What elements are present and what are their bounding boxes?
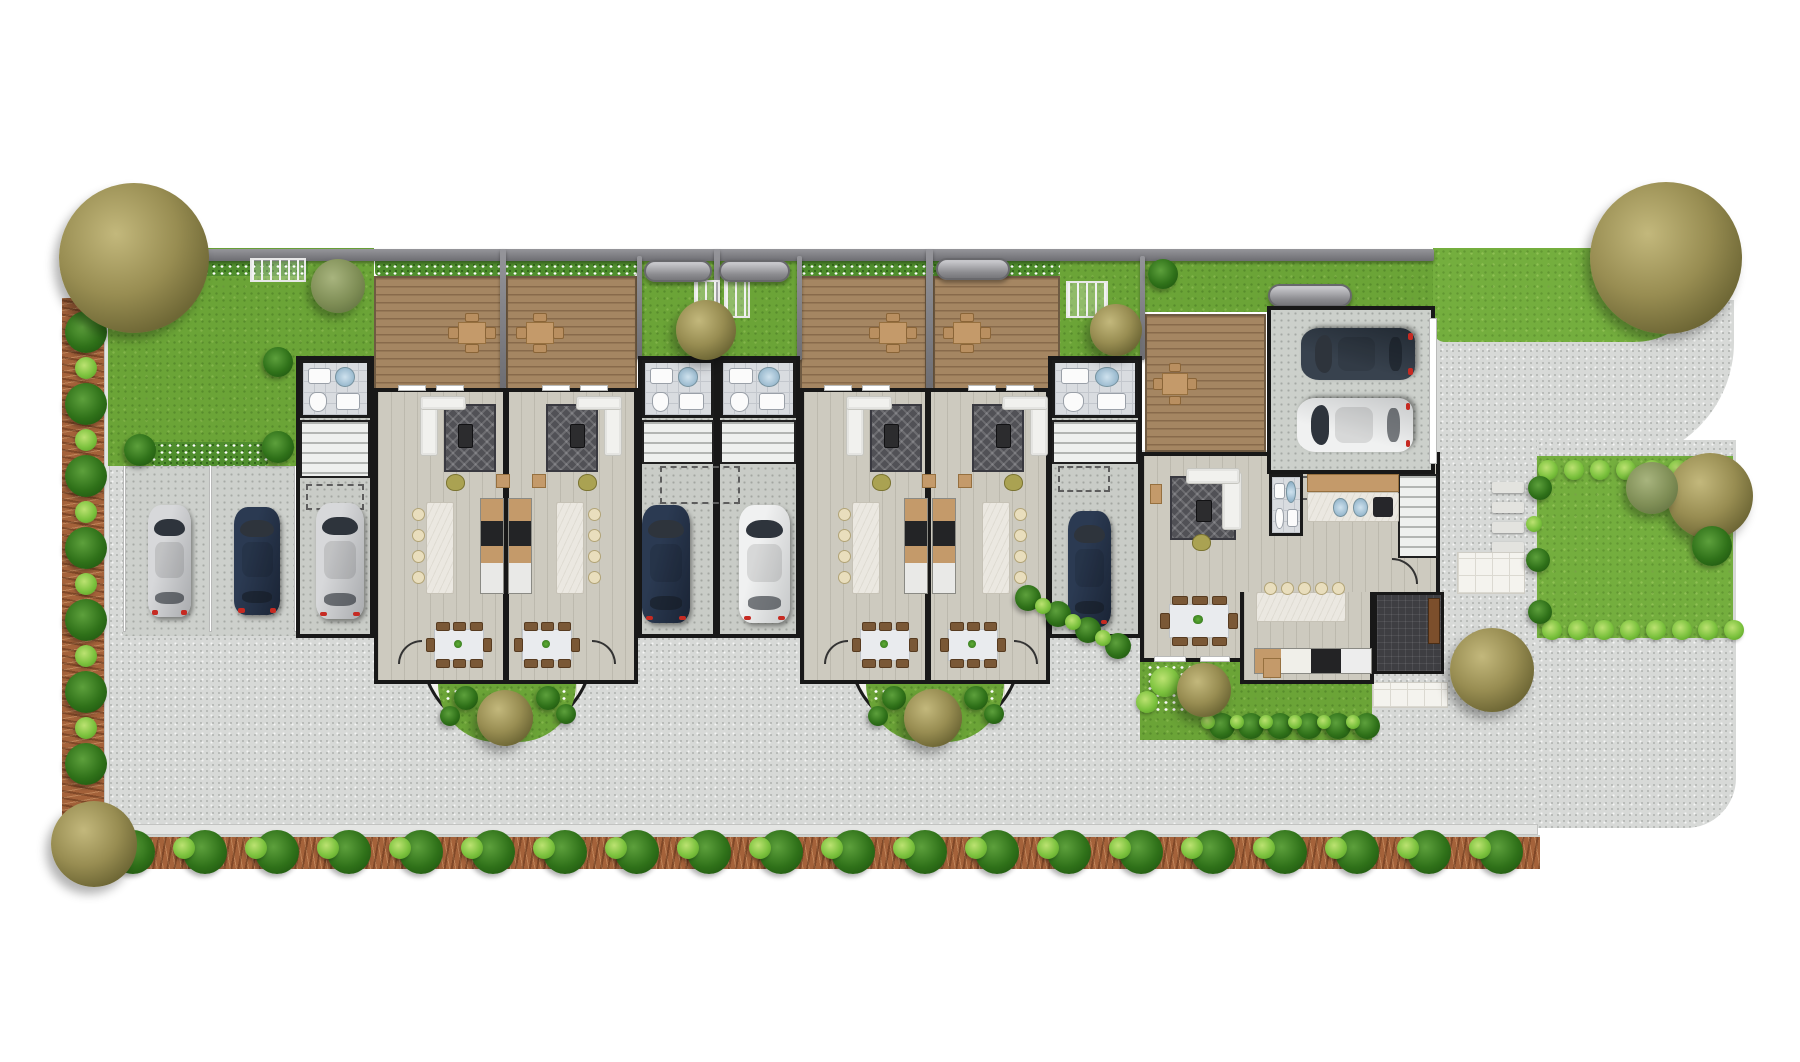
sofa-unit-3-a — [846, 404, 864, 456]
shrub-row-bottom-light-11 — [821, 837, 843, 859]
shrub-bay-a-2 — [536, 686, 560, 710]
shrub-fr-2 — [1526, 548, 1550, 572]
sofa-house-5-b — [1186, 468, 1240, 484]
outdoor-table-deck-4 — [942, 312, 990, 352]
fence-yard-2 — [797, 256, 802, 360]
shrub-back-right — [1148, 259, 1178, 289]
hedge-house-front-light-6 — [1346, 715, 1360, 729]
shrub-bay-a-1 — [454, 686, 478, 710]
kitchen-cabinets-house-5 — [1307, 474, 1399, 492]
garden-trellis-1 — [250, 258, 306, 282]
stools-house-5 — [1264, 582, 1349, 593]
patio-right — [1457, 552, 1525, 594]
armchair-unit-2 — [578, 474, 597, 491]
fence-yard-3 — [1140, 256, 1145, 360]
stairs-house-5 — [1398, 474, 1438, 558]
shrub-row-left-light-2 — [75, 429, 97, 451]
shrub-row-bottom-light-2 — [173, 837, 195, 859]
kitchen-bench-house-5 — [1307, 492, 1399, 522]
hedge-front-right-bottom-6 — [1672, 620, 1692, 640]
stairs-unit-2 — [642, 420, 714, 464]
shrub-row-bottom-light-8 — [605, 837, 627, 859]
side-table-house-5 — [1150, 484, 1162, 504]
glass-door-2 — [436, 385, 464, 391]
glass-door-10 — [1200, 656, 1230, 662]
car-carport-1-white — [314, 502, 366, 620]
coffee-table-unit-2 — [570, 424, 585, 448]
tree-house-front — [1177, 663, 1231, 717]
laundry-house-5 — [1269, 474, 1303, 536]
stools-unit-1 — [412, 508, 423, 592]
shrub-row-bottom-light-13 — [965, 837, 987, 859]
stepping-stone-1 — [1492, 482, 1524, 493]
shrub-row-left-light-4 — [75, 573, 97, 595]
stairs-unit-1 — [300, 420, 370, 478]
shrub-row-bottom-light-16 — [1181, 837, 1203, 859]
hedge-slope-light-2 — [1065, 614, 1081, 630]
porch-dashed-2 — [660, 466, 740, 504]
shrub-bay-b-3 — [868, 706, 888, 726]
shrub-row-left-dark-5 — [65, 599, 107, 641]
hedge-front-right-bottom-4 — [1620, 620, 1640, 640]
tree-bay-b — [904, 689, 962, 747]
shrub-row-left-dark-6 — [65, 671, 107, 713]
shrub-left-lawn-2 — [124, 434, 156, 466]
sofa-unit-2-a — [604, 404, 622, 456]
dining-set-unit-4 — [940, 622, 1004, 666]
glass-door-8 — [1006, 385, 1034, 391]
hedge-front-right-top-2 — [1564, 460, 1584, 480]
parking-line-left — [123, 464, 126, 632]
island-unit-4 — [982, 502, 1010, 594]
shrub-row-bottom-light-10 — [749, 837, 771, 859]
glass-door-9 — [1154, 656, 1186, 662]
tree-central-yard-2 — [1090, 304, 1142, 356]
shrub-row-bottom-light-15 — [1109, 837, 1131, 859]
shrub-row-bottom-light-19 — [1397, 837, 1419, 859]
shrub-row-bottom-light-5 — [389, 837, 411, 859]
hedge-house-front-light-1 — [1201, 715, 1215, 729]
shrub-row-bottom-light-20 — [1469, 837, 1491, 859]
garage-door-opening — [1429, 318, 1437, 464]
glass-door-5 — [824, 385, 852, 391]
shrub-row-bottom-light-14 — [1037, 837, 1059, 859]
hedge-front-right-bottom-2 — [1568, 620, 1588, 640]
car-garage-white — [1296, 396, 1414, 454]
shrub-row-left-light-3 — [75, 501, 97, 523]
site-plan: Townhouse development ground-floor site … — [0, 0, 1800, 1062]
shrub-row-left-dark-2 — [65, 383, 107, 425]
stools-unit-4 — [1014, 508, 1025, 592]
shrub-row-left-dark-3 — [65, 455, 107, 497]
hedge-front-right-bottom-7 — [1698, 620, 1718, 640]
flowerbed-left — [150, 442, 268, 466]
shrub-row-bottom-light-9 — [677, 837, 699, 859]
hedge-house-front-light-4 — [1288, 715, 1302, 729]
armchair-unit-3 — [872, 474, 891, 491]
fence-deck-divider-b — [926, 249, 933, 389]
glass-door-7 — [968, 385, 996, 391]
shrub-fr-3 — [1528, 600, 1552, 624]
armchair-unit-1 — [446, 474, 465, 491]
shrub-row-bottom-light-3 — [245, 837, 267, 859]
tree-far-right-2 — [1626, 462, 1678, 514]
glass-door-6 — [862, 385, 890, 391]
tree-corner-top-left — [59, 183, 209, 333]
glass-door-3 — [542, 385, 570, 391]
stools-unit-2 — [588, 508, 599, 592]
dining-set-house-5 — [1160, 596, 1236, 644]
stepping-stone-2 — [1492, 502, 1524, 513]
side-table-unit-4 — [958, 474, 972, 488]
shrub-left-lawn-1 — [263, 347, 293, 377]
water-tank-1 — [644, 260, 712, 282]
sofa-unit-1-b — [420, 396, 466, 410]
car-visitor-navy — [232, 506, 282, 616]
shrub-row-bottom-light-18 — [1325, 837, 1347, 859]
shrub-bay-a-3 — [440, 706, 460, 726]
hedge-slope-light-1 — [1035, 598, 1051, 614]
water-tank-3 — [936, 258, 1010, 280]
shrub-row-bottom-light-12 — [893, 837, 915, 859]
entry-walk — [1372, 682, 1448, 708]
sofa-unit-4-a — [1030, 404, 1048, 456]
hedge-front-right-top-3 — [1590, 460, 1610, 480]
parking-line-mid — [209, 464, 212, 632]
glass-door-4 — [580, 385, 608, 391]
car-carport-2-navy — [640, 504, 692, 624]
shrub-row-left-light-6 — [75, 717, 97, 739]
island-unit-1 — [426, 502, 454, 594]
stools-unit-3 — [838, 508, 849, 592]
shrub-row-bottom-light-4 — [317, 837, 339, 859]
shrub-row-bottom-light-7 — [533, 837, 555, 859]
shrub-bay-b-4 — [984, 704, 1004, 724]
shrub-row-left-light-1 — [75, 357, 97, 379]
tree-central-yard-1 — [676, 300, 736, 360]
shrub-house-front-2 — [1136, 691, 1158, 713]
tree-bay-a — [477, 690, 533, 746]
shrub-bay-b-1 — [882, 686, 906, 710]
side-table-unit-2 — [532, 474, 546, 488]
kitchen-bench-unit-2 — [508, 498, 532, 594]
hedge-house-front-light-5 — [1317, 715, 1331, 729]
kitchen-bench-unit-1 — [480, 498, 504, 594]
shrub-bay-b-2 — [964, 686, 988, 710]
car-carport-4-navy — [1066, 510, 1113, 628]
tree-right-lawn-corner — [1450, 628, 1534, 712]
sofa-unit-4-b — [1002, 396, 1048, 410]
tree-corner-bottom-left — [51, 801, 137, 887]
shrub-fr-1 — [1528, 476, 1552, 500]
dining-set-unit-2 — [514, 622, 578, 666]
bathroom-unit-2 — [642, 360, 714, 418]
stairs-unit-4 — [1052, 420, 1138, 464]
armchair-house-5 — [1192, 534, 1211, 551]
sofa-unit-1-a — [420, 404, 438, 456]
stepping-stone-3 — [1492, 522, 1524, 533]
outdoor-table-deck-3 — [868, 312, 916, 352]
bathroom-unit-4 — [1052, 360, 1138, 418]
coffee-table-unit-4 — [996, 424, 1011, 448]
water-tank-2 — [719, 260, 790, 282]
outdoor-table-deck-5 — [1152, 362, 1196, 404]
shrub-bay-a-4 — [556, 704, 576, 724]
shrub-row-left-dark-7 — [65, 743, 107, 785]
island-unit-3 — [852, 502, 880, 594]
shrub-house-front-1 — [1150, 667, 1180, 697]
coffee-table-house-5 — [1196, 500, 1212, 522]
stairs-unit-3 — [720, 420, 796, 464]
kitchen-bench-unit-4 — [932, 498, 956, 594]
hedge-front-right-bottom-1 — [1542, 620, 1562, 640]
dining-set-unit-3 — [852, 622, 916, 666]
outdoor-table-deck-2 — [515, 312, 563, 352]
sofa-unit-2-b — [576, 396, 622, 410]
glass-door-1 — [398, 385, 426, 391]
water-tank-4 — [1268, 284, 1352, 307]
shrub-fr-4 — [1526, 516, 1542, 532]
tree-back-left-small — [311, 259, 365, 313]
hedge-house-front-light-3 — [1259, 715, 1273, 729]
coffee-table-unit-1 — [458, 424, 473, 448]
tree-corner-top-right — [1590, 182, 1742, 334]
fence-yard-1 — [637, 256, 642, 360]
coffee-table-unit-3 — [884, 424, 899, 448]
shrub-row-bottom-light-6 — [461, 837, 483, 859]
shrub-row-left-light-5 — [75, 645, 97, 667]
shrub-far-right — [1692, 526, 1732, 566]
hedge-front-right-bottom-3 — [1594, 620, 1614, 640]
kitchen-bench-unit-3 — [904, 498, 928, 594]
side-table-unit-3 — [922, 474, 936, 488]
entry-step-house-5 — [1263, 658, 1281, 678]
hedge-front-right-bottom-8 — [1724, 620, 1744, 640]
hedge-slope-light-3 — [1095, 630, 1111, 646]
curb-bottom — [108, 824, 1538, 835]
hedge-front-right-bottom-5 — [1646, 620, 1666, 640]
hedge-house-front-light-2 — [1230, 715, 1244, 729]
car-carport-3-white — [737, 504, 792, 624]
side-table-unit-1 — [496, 474, 510, 488]
armchair-unit-4 — [1004, 474, 1023, 491]
front-door-house-5 — [1428, 598, 1440, 644]
dining-set-unit-1 — [426, 622, 490, 666]
island-house-5 — [1256, 592, 1346, 622]
shrub-row-bottom-light-17 — [1253, 837, 1275, 859]
sofa-unit-3-b — [846, 396, 892, 410]
bathroom-unit-1 — [300, 360, 370, 418]
car-visitor-silver — [146, 504, 193, 618]
car-garage-suv — [1300, 326, 1416, 382]
fence-deck-divider-a — [500, 249, 506, 389]
page-title: Townhouse development ground-floor site … — [0, 21, 1, 22]
shrub-row-left-dark-4 — [65, 527, 107, 569]
shrub-left-lawn-3 — [262, 431, 294, 463]
outdoor-table-deck-1 — [447, 312, 495, 352]
bathroom-unit-3 — [720, 360, 796, 418]
island-unit-2 — [556, 502, 584, 594]
porch-dashed-4 — [1058, 466, 1110, 492]
